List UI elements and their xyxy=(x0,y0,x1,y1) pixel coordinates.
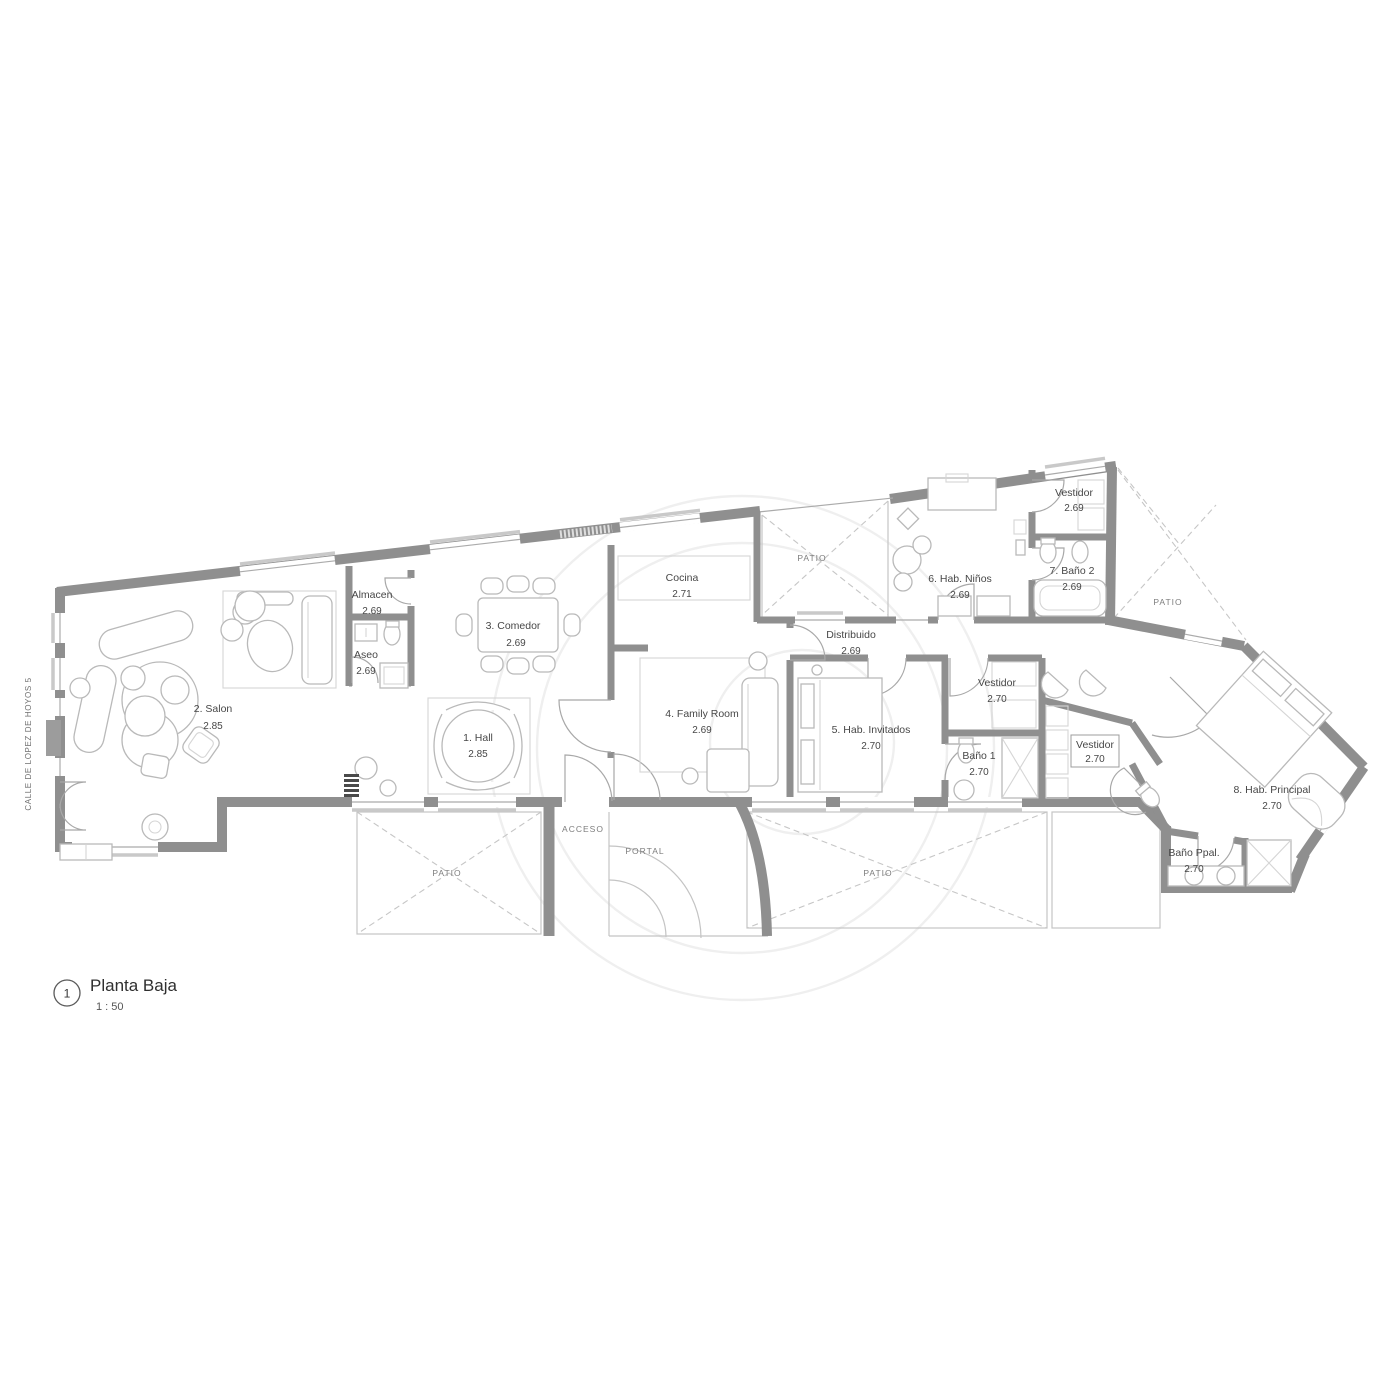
patio-right xyxy=(1114,468,1246,640)
room-height-bano2: 2.69 xyxy=(1062,582,1082,593)
room-label-vestidor-principal: Vestidor xyxy=(1076,739,1114,751)
room-label-hall: 1. Hall xyxy=(463,732,493,744)
room-height-bano1: 2.70 xyxy=(969,767,989,778)
room-label-almacen: Almacen xyxy=(352,589,393,601)
patio-bottom-middle-label: PATIO xyxy=(863,868,892,878)
room-label-cocina: Cocina xyxy=(666,572,699,584)
room-height-family: 2.69 xyxy=(692,725,712,736)
bano-ppal-fixtures xyxy=(1135,781,1291,886)
room-height-distribuidor: 2.69 xyxy=(841,646,861,657)
hall-furniture xyxy=(428,698,530,794)
patio-top-label: PATIO xyxy=(797,553,826,563)
room-height-hall: 2.85 xyxy=(468,749,488,760)
room-label-bano-ppal: Baño Ppal. xyxy=(1168,847,1219,859)
title-block: 1 Planta Baja 1 : 50 xyxy=(54,976,177,1013)
comedor-hall-door xyxy=(559,700,611,752)
room-height-comedor: 2.69 xyxy=(506,638,526,649)
bano1-fixtures xyxy=(954,738,1038,800)
room-height-almacen: 2.69 xyxy=(362,606,382,617)
room-height-vestidor-invitados: 2.70 xyxy=(987,694,1007,705)
family-furniture xyxy=(640,652,778,792)
title-number: 1 xyxy=(64,987,71,1001)
room-label-comedor: 3. Comedor xyxy=(486,620,541,632)
room-height-ninos: 2.69 xyxy=(950,590,970,601)
floor-plan-sheet: 1. Hall 2.85 2. Salon 2.85 3. Comedor 2.… xyxy=(0,0,1400,1400)
floor-plan-drawing: 1. Hall 2.85 2. Salon 2.85 3. Comedor 2.… xyxy=(0,0,1400,1400)
room-label-vestidor-invitados: Vestidor xyxy=(978,677,1016,689)
patio-bottom-left-label: PATIO xyxy=(432,868,461,878)
drawing-title: Planta Baja xyxy=(90,976,177,995)
room-label-principal: 8. Hab. Principal xyxy=(1233,784,1310,796)
drawing-scale: 1 : 50 xyxy=(96,1001,124,1013)
room-label-salon: 2. Salon xyxy=(194,703,233,715)
street-label: CALLE DE LOPEZ DE HOYOS 5 xyxy=(24,677,33,810)
wall-pillar xyxy=(46,720,61,756)
lightwell-outline xyxy=(1052,812,1160,928)
room-label-vestidor-ninos: Vestidor xyxy=(1055,487,1093,499)
room-label-family: 4. Family Room xyxy=(665,708,739,720)
hallway-chairs xyxy=(1041,670,1106,698)
room-height-vestidor-principal: 2.70 xyxy=(1085,754,1105,765)
room-height-salon: 2.85 xyxy=(203,721,223,732)
portal-label: PORTAL xyxy=(625,846,664,856)
patio-bottom-middle xyxy=(747,812,1047,928)
room-label-ninos: 6. Hab. Niños xyxy=(928,573,992,585)
acceso-label: ACCESO xyxy=(562,824,604,834)
room-label-aseo: Aseo xyxy=(354,649,378,661)
room-label-distribuidor: Distribuido xyxy=(826,629,876,641)
room-label-invitados: 5. Hab. Invitados xyxy=(832,724,911,736)
room-height-cocina: 2.71 xyxy=(672,589,692,600)
acceso-door xyxy=(565,755,612,802)
room-height-principal: 2.70 xyxy=(1262,801,1282,812)
radiator xyxy=(344,774,359,797)
family-hall-door xyxy=(614,754,660,800)
room-height-vestidor-ninos: 2.69 xyxy=(1064,503,1084,514)
patio-right-label: PATIO xyxy=(1153,597,1182,607)
room-label-bano2: 7. Baño 2 xyxy=(1050,565,1095,577)
room-label-bano1: Baño 1 xyxy=(962,750,995,762)
room-height-invitados: 2.70 xyxy=(861,741,881,752)
room-height-aseo: 2.69 xyxy=(356,666,376,677)
room-height-bano-ppal: 2.70 xyxy=(1184,864,1204,875)
